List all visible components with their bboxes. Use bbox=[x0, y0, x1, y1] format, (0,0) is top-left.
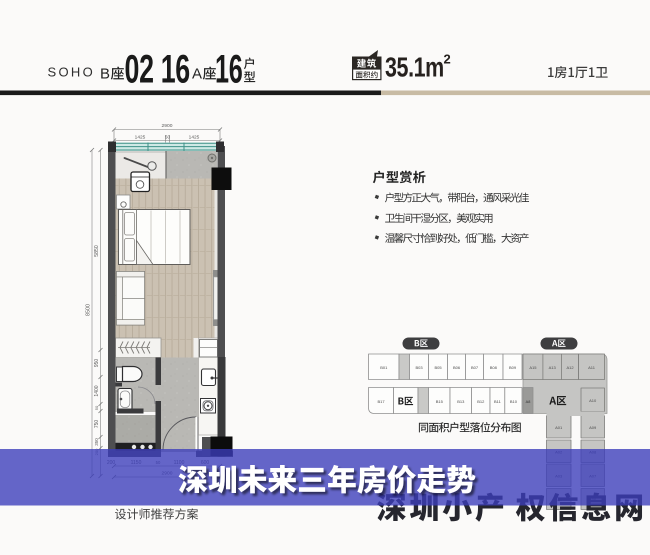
svg-text:B06: B06 bbox=[453, 365, 461, 370]
svg-text:B17: B17 bbox=[377, 399, 385, 404]
svg-text:350: 350 bbox=[94, 438, 99, 446]
svg-text:B15: B15 bbox=[436, 399, 444, 404]
svg-text:A11: A11 bbox=[588, 365, 596, 370]
svg-text:B: B bbox=[100, 66, 110, 83]
svg-text:B10: B10 bbox=[510, 399, 518, 404]
svg-text:A: A bbox=[192, 66, 202, 83]
svg-text:A01: A01 bbox=[555, 425, 563, 430]
svg-text:A13: A13 bbox=[549, 365, 557, 370]
svg-text:950: 950 bbox=[94, 359, 100, 368]
svg-text:B07: B07 bbox=[471, 365, 479, 370]
svg-text:16: 16 bbox=[215, 48, 242, 92]
svg-text:B05: B05 bbox=[434, 365, 442, 370]
svg-text:5850: 5850 bbox=[94, 245, 100, 257]
svg-text:B08: B08 bbox=[490, 365, 498, 370]
svg-text:1425: 1425 bbox=[135, 135, 146, 141]
svg-text:B03: B03 bbox=[415, 365, 423, 370]
svg-text:A8: A8 bbox=[526, 400, 531, 404]
svg-text:2: 2 bbox=[444, 52, 451, 67]
svg-text:8500: 8500 bbox=[86, 304, 92, 316]
svg-text:B11: B11 bbox=[494, 399, 502, 404]
svg-text:B09: B09 bbox=[509, 365, 517, 370]
svg-text:35.1m: 35.1m bbox=[385, 53, 444, 83]
svg-text:2900: 2900 bbox=[162, 123, 173, 129]
svg-text:B12: B12 bbox=[477, 399, 485, 404]
svg-text:50: 50 bbox=[94, 405, 99, 410]
svg-text:750: 750 bbox=[94, 420, 100, 429]
svg-text:1425: 1425 bbox=[189, 135, 200, 141]
svg-text:02 16: 02 16 bbox=[125, 47, 190, 92]
svg-text:A09: A09 bbox=[589, 425, 597, 430]
svg-text:A12: A12 bbox=[566, 365, 574, 370]
svg-text:SOHO: SOHO bbox=[48, 65, 95, 80]
svg-text:A10: A10 bbox=[589, 398, 597, 403]
svg-text:B01: B01 bbox=[380, 365, 388, 370]
svg-text:1400: 1400 bbox=[94, 385, 100, 396]
svg-text:A15: A15 bbox=[529, 365, 537, 370]
svg-text:B13: B13 bbox=[457, 399, 465, 404]
